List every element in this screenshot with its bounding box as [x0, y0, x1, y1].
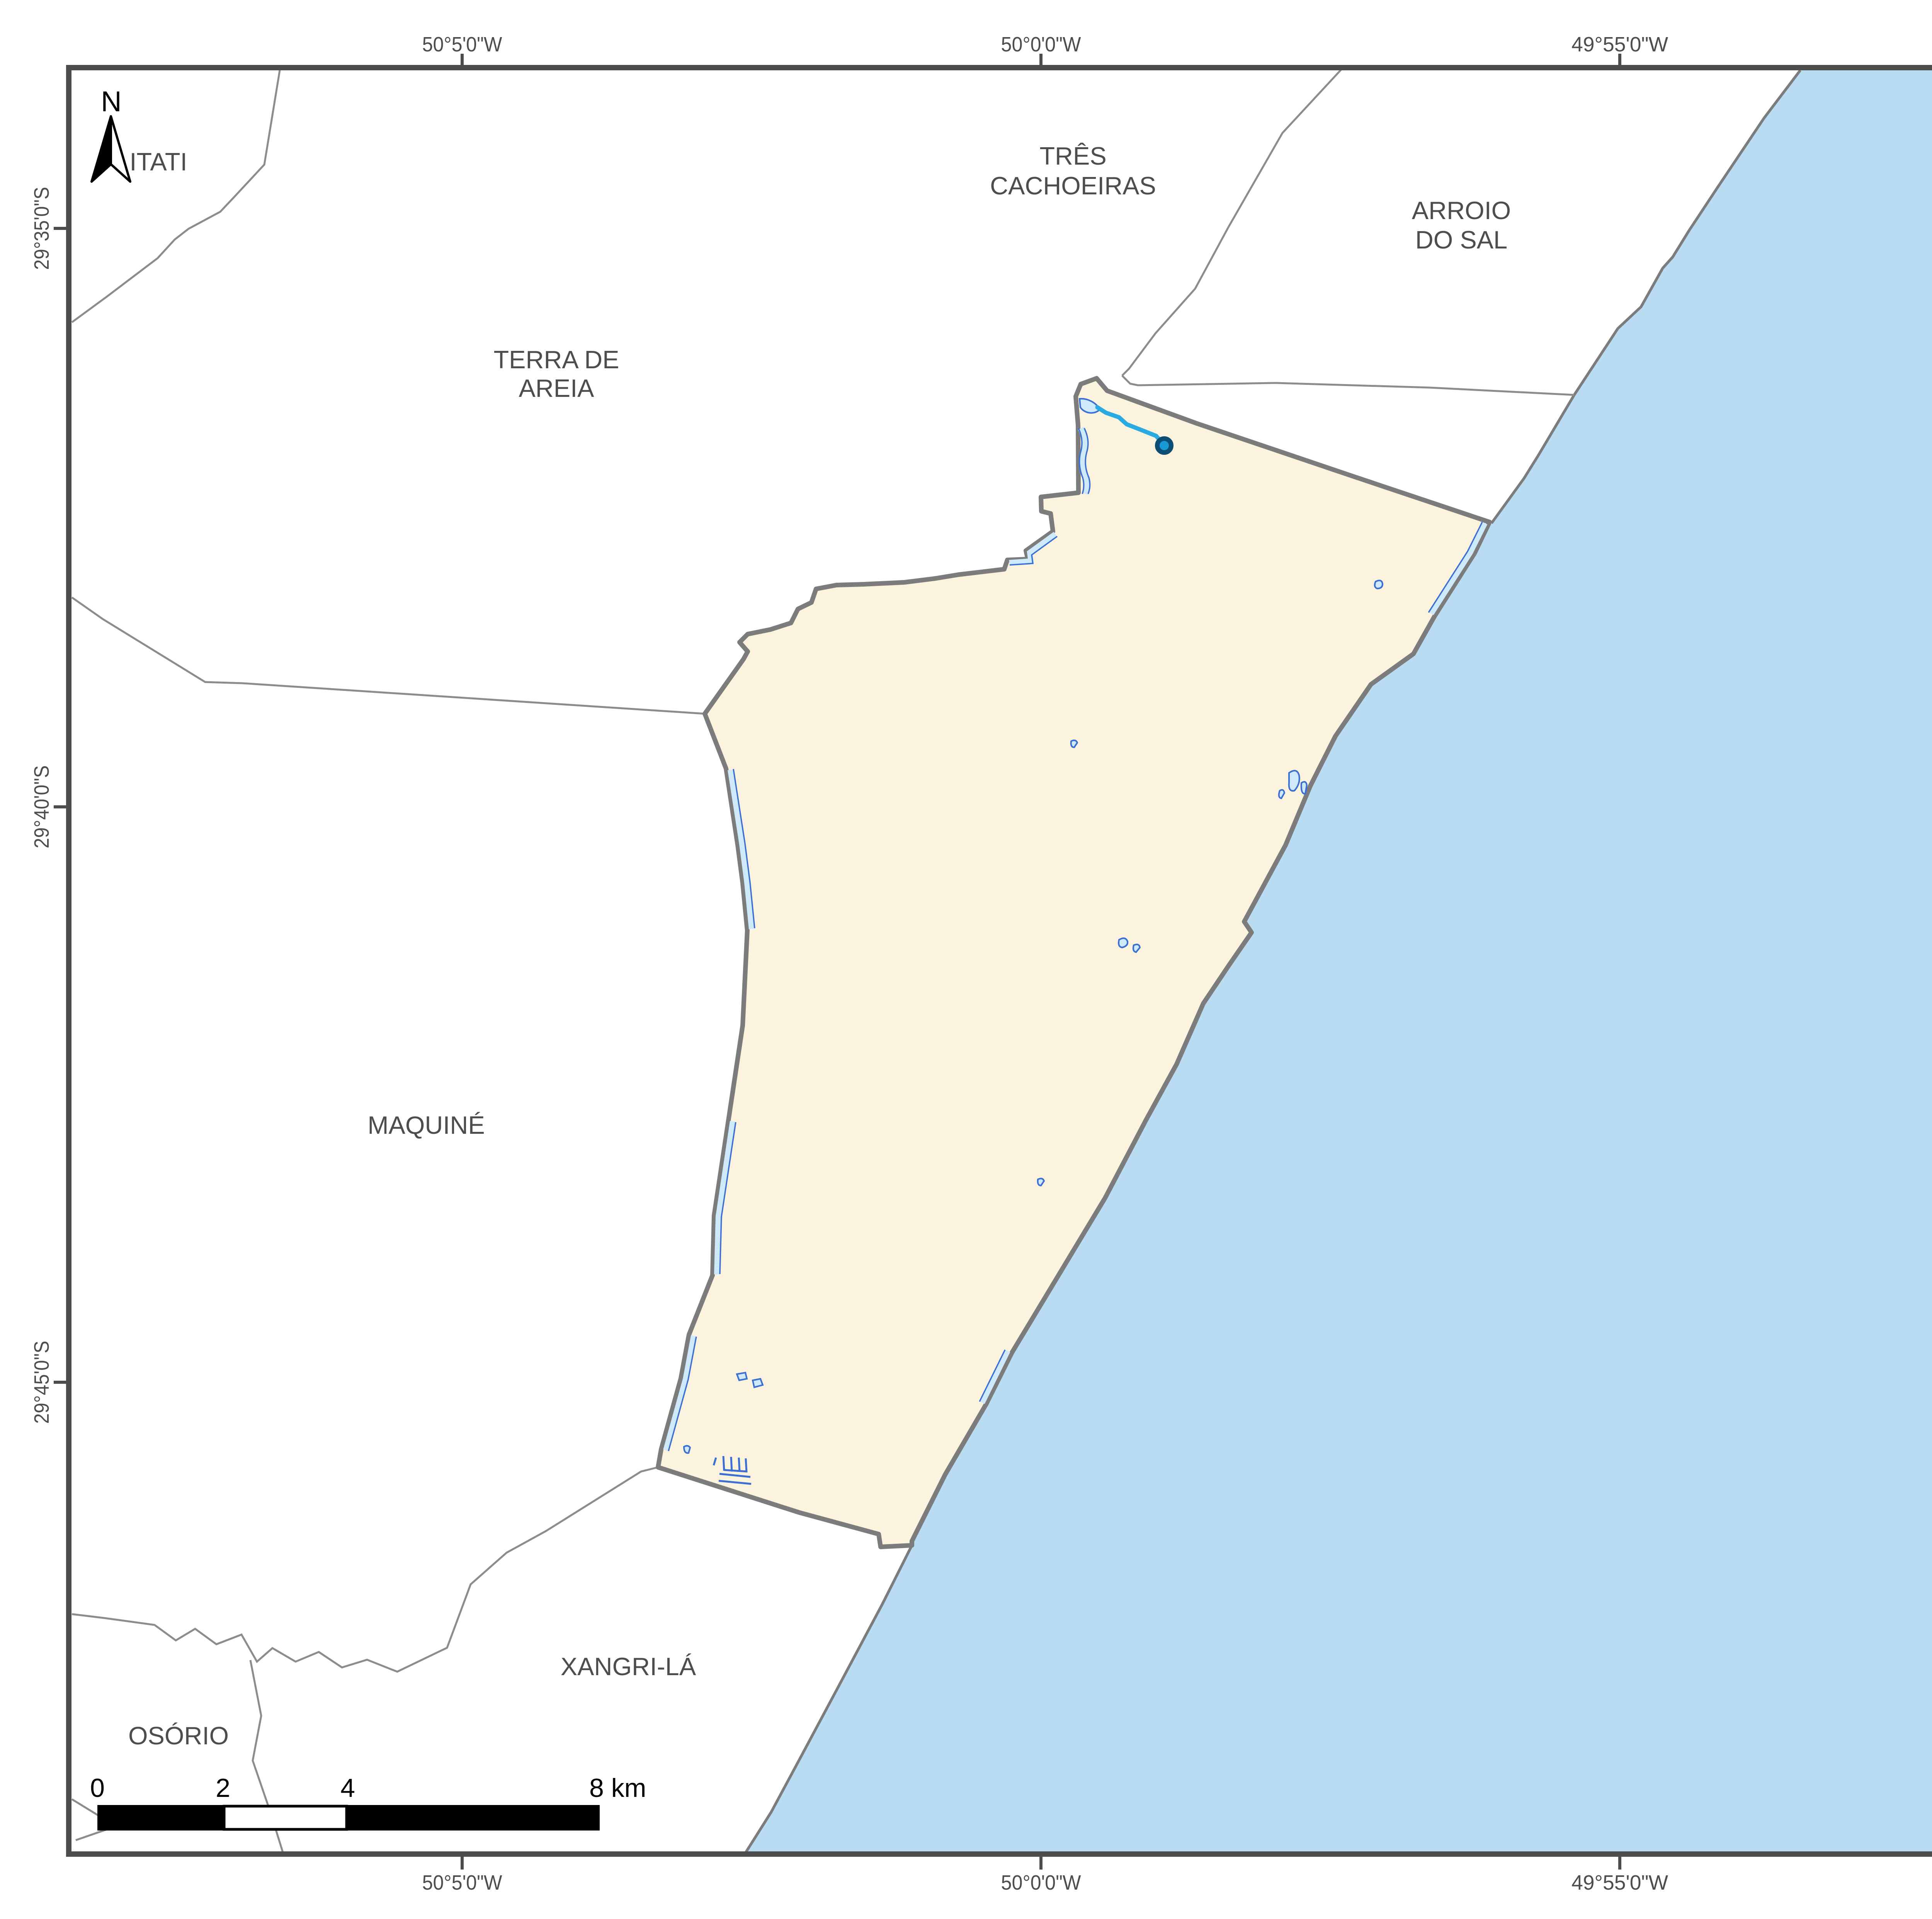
svg-text:50°5'0"W: 50°5'0"W	[422, 33, 502, 56]
svg-text:50°0'0"W: 50°0'0"W	[1001, 1871, 1081, 1894]
svg-text:50°5'0"W: 50°5'0"W	[422, 1871, 502, 1894]
svg-text:CACHOEIRAS: CACHOEIRAS	[990, 172, 1156, 200]
svg-text:29°45'0"S: 29°45'0"S	[30, 1341, 53, 1424]
svg-text:50°0'0"W: 50°0'0"W	[1001, 33, 1081, 56]
svg-text:N: N	[101, 85, 121, 117]
svg-text:OSÓRIO: OSÓRIO	[128, 1722, 229, 1750]
svg-text:ITATI: ITATI	[129, 148, 187, 176]
svg-text:DO SAL: DO SAL	[1415, 226, 1507, 254]
svg-text:MAQUINÉ: MAQUINÉ	[367, 1111, 485, 1139]
svg-text:XANGRI-LÁ: XANGRI-LÁ	[561, 1652, 696, 1681]
svg-text:TRÊS: TRÊS	[1039, 142, 1106, 170]
svg-text:2: 2	[216, 1773, 230, 1803]
svg-text:29°40'0"S: 29°40'0"S	[30, 766, 53, 849]
svg-text:49°55'0"W: 49°55'0"W	[1571, 1871, 1668, 1894]
svg-text:TERRA DE: TERRA DE	[493, 345, 619, 374]
svg-text:AREIA: AREIA	[519, 374, 594, 402]
svg-text:0: 0	[90, 1773, 105, 1803]
svg-text:8 km: 8 km	[589, 1773, 646, 1803]
svg-text:49°55'0"W: 49°55'0"W	[1571, 33, 1668, 56]
svg-text:ARROIO: ARROIO	[1412, 196, 1511, 225]
svg-text:29°35'0"S: 29°35'0"S	[30, 187, 53, 270]
svg-text:4: 4	[340, 1773, 355, 1803]
